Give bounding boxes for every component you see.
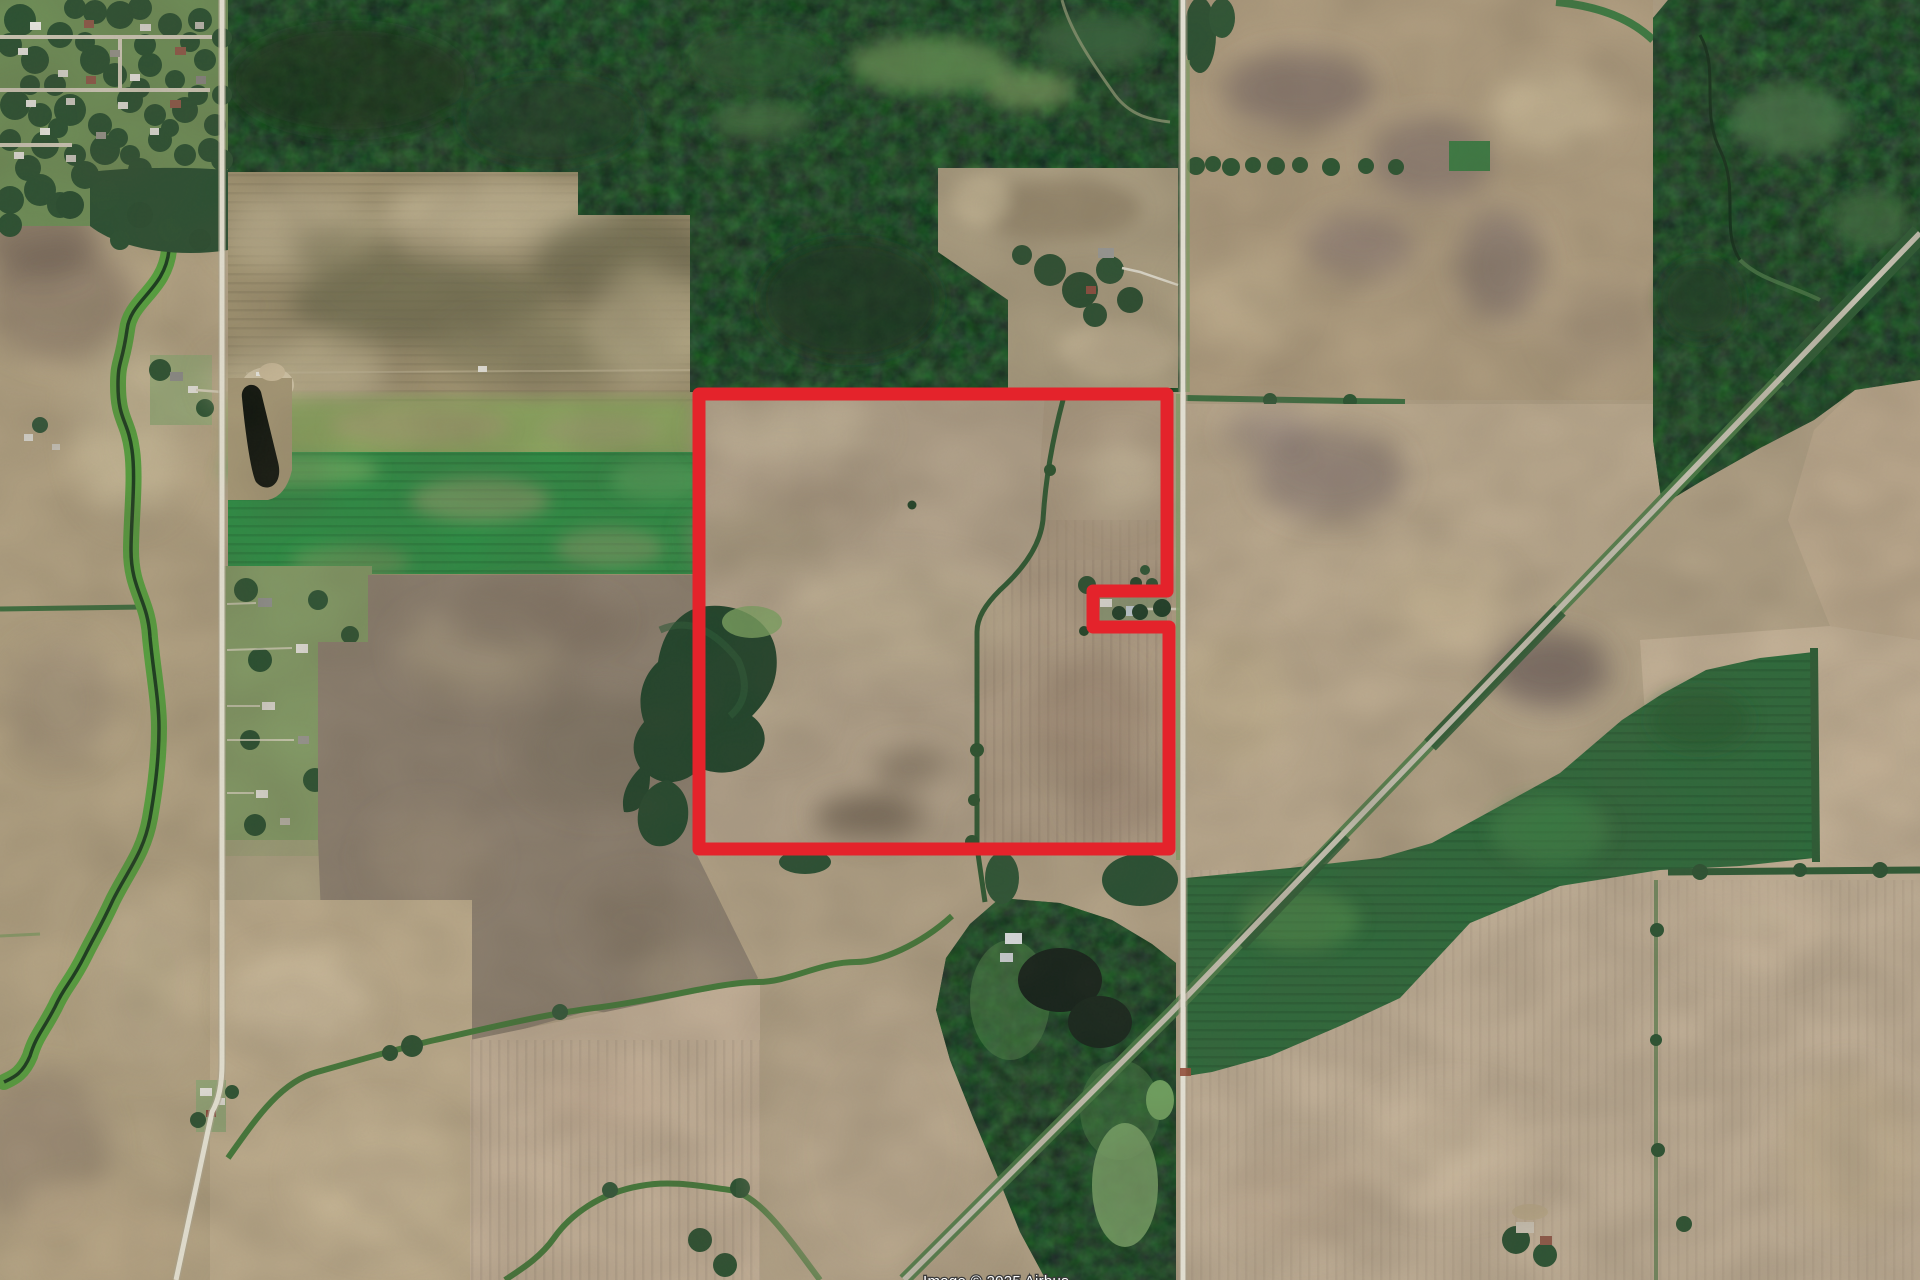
- svg-text:Image © 2025 Airbus: Image © 2025 Airbus: [923, 1273, 1069, 1280]
